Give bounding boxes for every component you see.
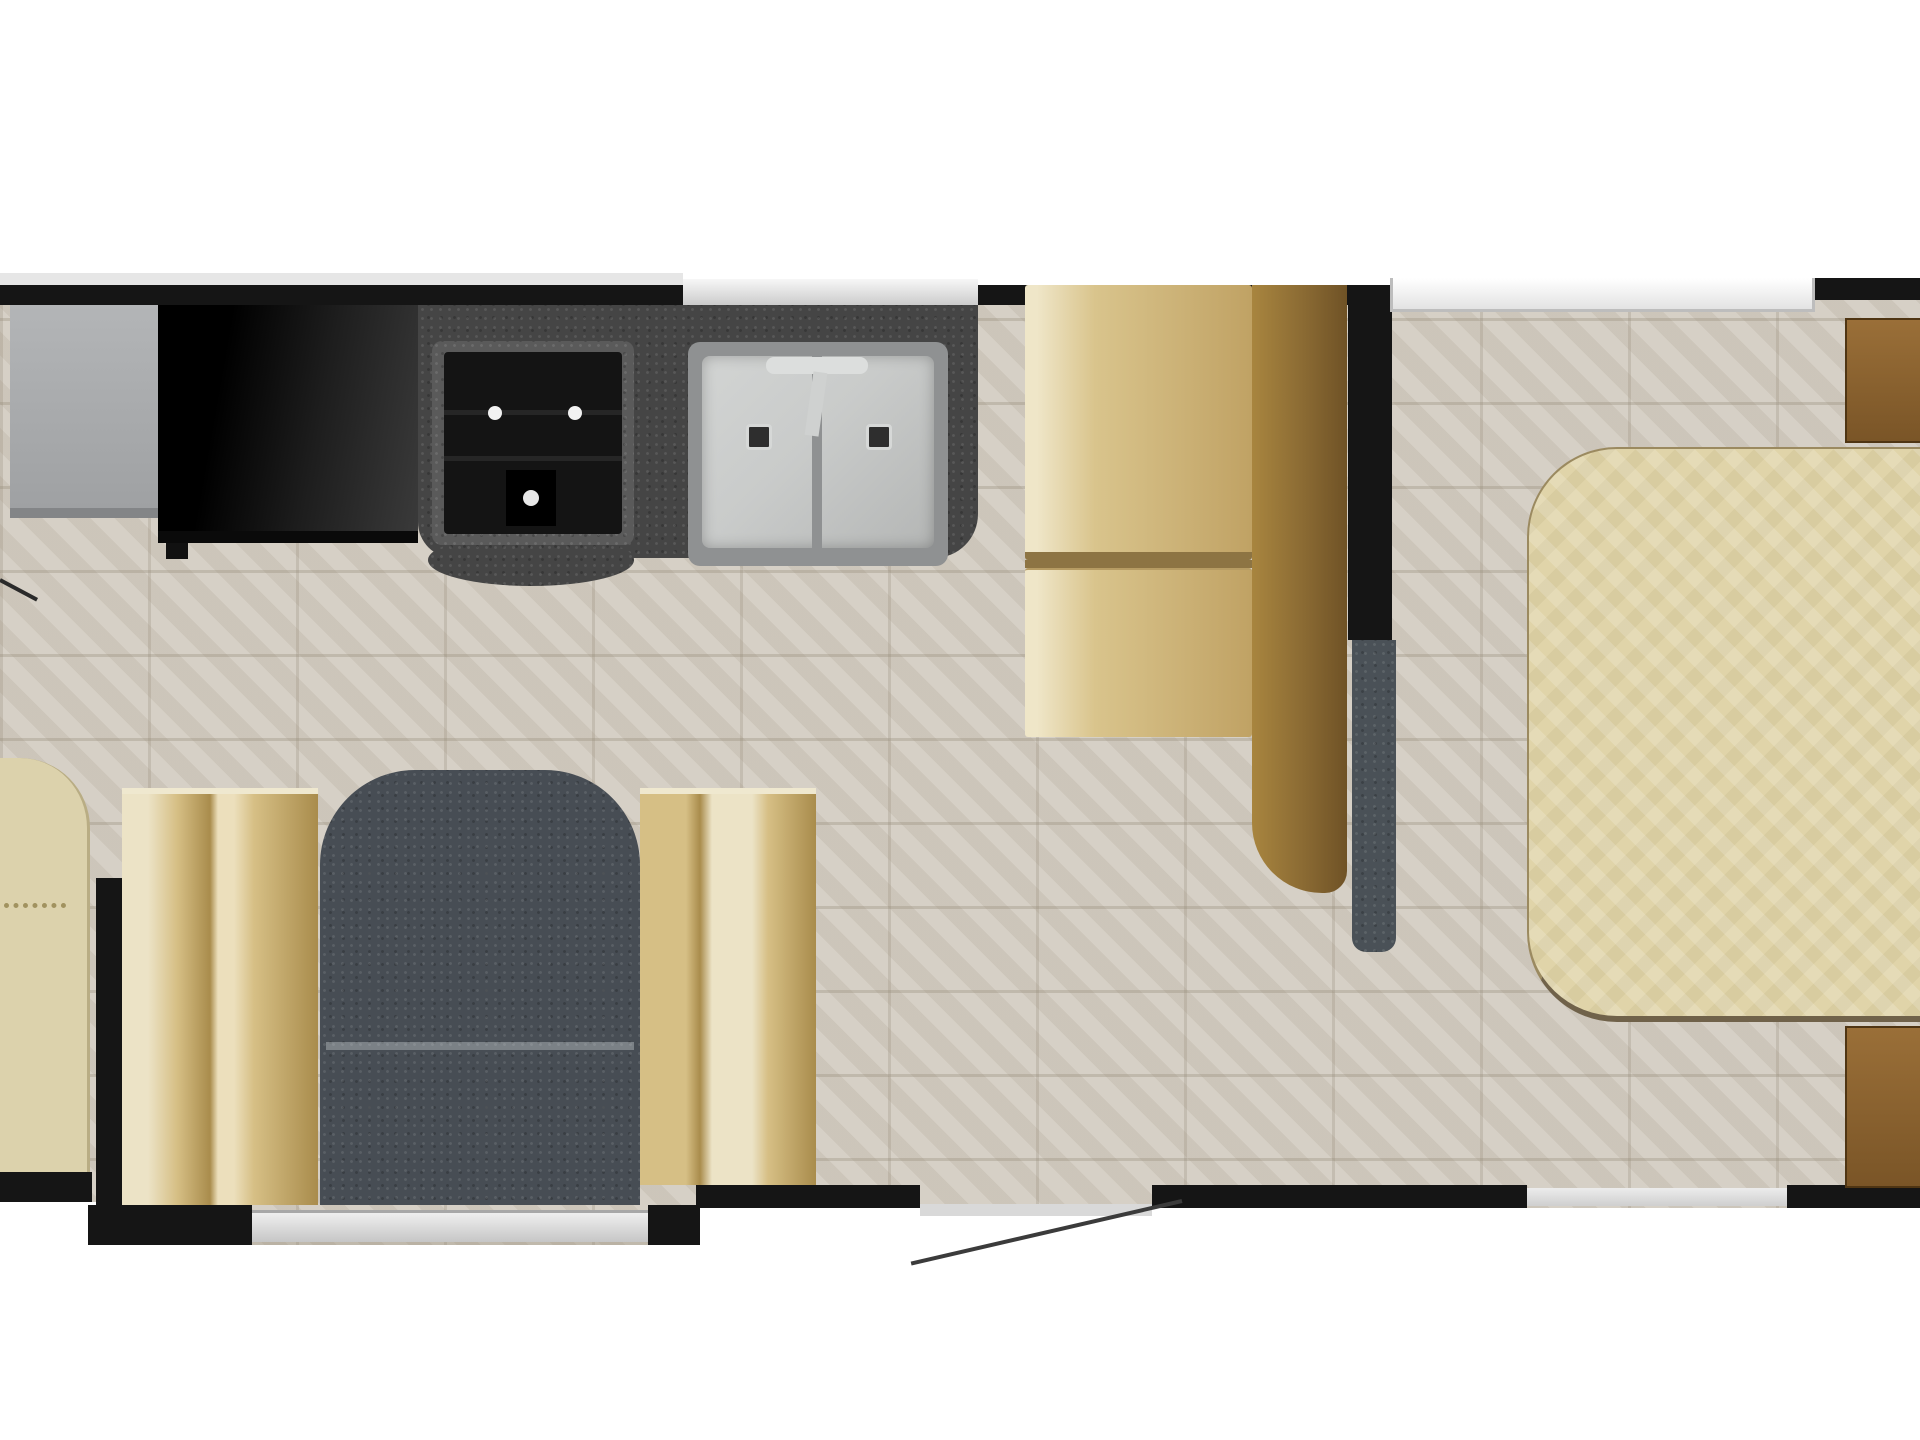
bottom-wall-left-stub bbox=[0, 1172, 92, 1202]
cooktop-grate-line bbox=[444, 456, 622, 461]
bed bbox=[1527, 447, 1920, 1022]
double-sink bbox=[688, 342, 948, 566]
pocket-door bbox=[1352, 640, 1396, 952]
exterior-top bbox=[0, 0, 1920, 285]
slideout-side-wall bbox=[96, 878, 122, 1245]
bottom-wall-b bbox=[1152, 1185, 1527, 1208]
top-wall-cap bbox=[0, 273, 683, 285]
sofa-bench-left bbox=[122, 788, 318, 1205]
rear-bottom-window bbox=[1527, 1188, 1787, 1206]
sofa-bench-right bbox=[640, 788, 816, 1185]
burner-icon bbox=[488, 406, 502, 420]
bottom-wall-a bbox=[696, 1185, 920, 1208]
armchair bbox=[320, 770, 640, 1205]
exterior-bottom-right bbox=[700, 1208, 1920, 1440]
tv-cabinet-foot bbox=[166, 543, 188, 559]
burner-icon bbox=[523, 490, 539, 506]
seat-seam bbox=[4, 903, 66, 908]
top-wall-right bbox=[1815, 278, 1920, 300]
exterior-bottom-left bbox=[0, 1202, 96, 1440]
drain-icon bbox=[746, 424, 772, 450]
exterior-bottom-slideout bbox=[96, 1245, 700, 1440]
nightstand-bottom bbox=[1845, 1026, 1920, 1188]
dinette-cushion-upper bbox=[1025, 285, 1252, 560]
slideout-bottom-wall-a bbox=[88, 1205, 252, 1245]
floorplan-canvas bbox=[0, 0, 1920, 1440]
nightstand-top bbox=[1845, 318, 1920, 443]
bedroom-divider-wall bbox=[1348, 295, 1392, 640]
corner-end-seat bbox=[0, 758, 90, 1172]
cooktop-grate-line bbox=[444, 410, 622, 415]
bedroom-window bbox=[1390, 278, 1815, 312]
dinette-seam bbox=[1025, 560, 1252, 568]
dinette-backrest bbox=[1252, 285, 1347, 893]
armchair-seam bbox=[326, 1042, 634, 1050]
bottom-wall-c bbox=[1787, 1185, 1920, 1208]
drain-icon bbox=[866, 424, 892, 450]
slideout-bottom-wall-b bbox=[648, 1205, 700, 1245]
cooktop bbox=[432, 341, 634, 545]
refrigerator bbox=[10, 305, 158, 518]
top-wall-left bbox=[0, 285, 683, 305]
slideout-window bbox=[252, 1210, 648, 1242]
cooktop-surface bbox=[444, 352, 622, 534]
dinette-cushion-lower bbox=[1025, 568, 1252, 737]
burner-icon bbox=[568, 406, 582, 420]
tv-cabinet bbox=[158, 305, 418, 543]
